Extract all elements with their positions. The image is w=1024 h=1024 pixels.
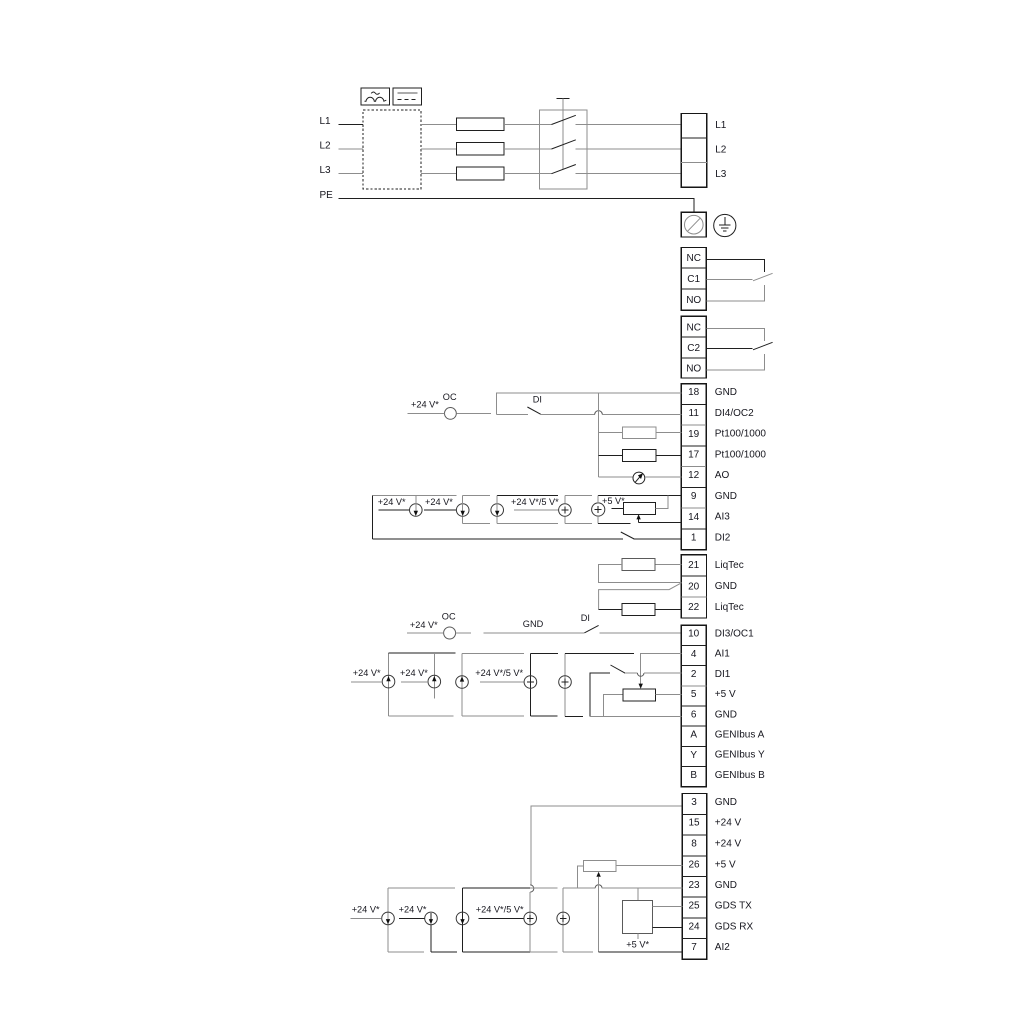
svg-text:22: 22 [688,602,700,613]
svg-text:L3: L3 [715,169,727,180]
svg-text:DI: DI [581,613,590,623]
svg-text:NC: NC [686,253,700,264]
svg-text:GND: GND [715,581,737,592]
svg-text:21: 21 [688,560,700,571]
svg-text:7: 7 [691,942,697,953]
svg-text:1: 1 [691,533,697,544]
svg-text:10: 10 [688,629,700,640]
svg-text:3: 3 [691,797,697,808]
svg-text:L3: L3 [320,165,332,176]
svg-text:23: 23 [688,880,700,891]
svg-text:+24 V: +24 V [715,839,742,850]
svg-text:12: 12 [688,470,700,481]
svg-text:GDS TX: GDS TX [715,901,752,912]
svg-text:GDS RX: GDS RX [715,921,754,932]
svg-text:DI2: DI2 [715,533,731,544]
svg-text:NO: NO [686,363,701,374]
svg-text:C2: C2 [687,343,700,354]
svg-text:LiqTec: LiqTec [715,602,744,613]
svg-text:18: 18 [688,387,700,398]
svg-text:+24 V*/5 V*: +24 V*/5 V* [511,497,559,507]
svg-text:OC: OC [443,392,457,402]
svg-text:GENIbus B: GENIbus B [715,770,765,781]
svg-text:DI: DI [533,395,542,405]
svg-text:+24 V*: +24 V* [353,668,381,678]
svg-text:+5 V*: +5 V* [626,939,649,949]
svg-text:4: 4 [691,649,697,660]
svg-text:2: 2 [691,669,697,680]
svg-text:DI1: DI1 [715,669,731,680]
svg-text:AO: AO [715,470,730,481]
svg-text:+24 V*: +24 V* [352,904,380,914]
svg-text:+24 V*: +24 V* [425,497,453,507]
svg-text:L1: L1 [715,120,727,131]
svg-text:+24 V*: +24 V* [411,400,439,410]
svg-text:+24 V*: +24 V* [378,497,406,507]
svg-text:B: B [690,770,697,781]
svg-text:GND: GND [715,880,737,891]
svg-text:19: 19 [688,429,700,440]
svg-text:8: 8 [691,839,697,850]
svg-text:AI2: AI2 [715,942,730,953]
svg-text:17: 17 [688,450,700,461]
svg-text:DI3/OC1: DI3/OC1 [715,629,754,640]
svg-text:20: 20 [688,581,700,592]
svg-text:DI4/OC2: DI4/OC2 [715,408,754,419]
svg-text:C1: C1 [687,274,700,285]
svg-text:+5 V: +5 V [715,689,736,700]
svg-text:L2: L2 [320,140,332,151]
svg-text:Y: Y [690,750,697,761]
svg-text:+24 V*/5 V*: +24 V*/5 V* [475,668,523,678]
svg-text:PE: PE [320,190,334,201]
svg-text:+24 V: +24 V [715,818,742,829]
svg-text:11: 11 [689,408,700,419]
svg-text:GND: GND [715,491,737,502]
svg-text:15: 15 [688,818,700,829]
svg-text:NC: NC [686,322,700,333]
svg-text:GND: GND [715,387,737,398]
svg-text:A: A [690,730,697,741]
svg-text:L2: L2 [715,144,727,155]
svg-text:14: 14 [688,512,700,523]
svg-text:AI1: AI1 [715,649,730,660]
svg-text:+5 V: +5 V [715,859,736,870]
svg-text:5: 5 [691,689,697,700]
svg-text:LiqTec: LiqTec [715,560,744,571]
svg-text:26: 26 [688,859,700,870]
svg-text:9: 9 [691,491,697,502]
svg-text:OC: OC [442,612,456,622]
svg-text:25: 25 [688,901,700,912]
svg-text:GENIbus Y: GENIbus Y [715,750,765,761]
svg-text:L1: L1 [320,116,332,127]
svg-text:24: 24 [688,921,700,932]
svg-text:GENIbus A: GENIbus A [715,730,765,741]
svg-text:GND: GND [715,797,737,808]
svg-text:Pt100/1000: Pt100/1000 [715,429,767,440]
svg-text:+24 V*: +24 V* [399,904,427,914]
svg-text:+5 V*: +5 V* [602,496,625,506]
svg-text:NO: NO [686,295,701,306]
svg-text:+24 V*: +24 V* [410,620,438,630]
svg-text:Pt100/1000: Pt100/1000 [715,450,767,461]
svg-text:+24 V*: +24 V* [400,668,428,678]
svg-text:6: 6 [691,709,697,720]
svg-text:GND: GND [715,709,737,720]
svg-text:+24 V*/5 V*: +24 V*/5 V* [476,904,524,914]
svg-text:AI3: AI3 [715,512,730,523]
svg-text:GND: GND [523,619,544,629]
